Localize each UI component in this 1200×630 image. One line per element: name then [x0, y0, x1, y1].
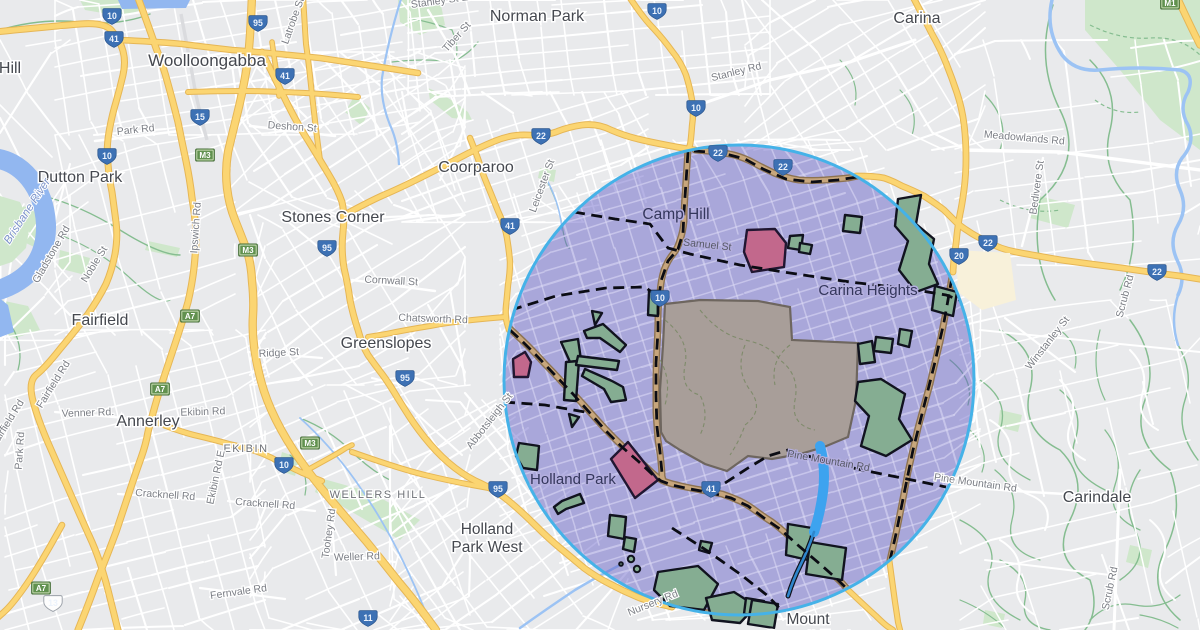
svg-text:WELLERS HILL: WELLERS HILL	[330, 489, 427, 501]
svg-text:10: 10	[655, 293, 665, 303]
svg-text:Ekibin Rd: Ekibin Rd	[180, 405, 225, 419]
svg-text:M3: M3	[199, 151, 211, 160]
svg-text:M3: M3	[242, 246, 254, 255]
svg-text:Holland: Holland	[461, 521, 514, 538]
svg-text:Annerley: Annerley	[116, 413, 179, 430]
svg-text:10: 10	[279, 460, 289, 470]
svg-text:Weller Rd: Weller Rd	[334, 550, 380, 564]
svg-text:A7: A7	[36, 584, 47, 593]
svg-text:15: 15	[195, 112, 205, 122]
svg-text:Woolloongabba: Woolloongabba	[148, 51, 266, 70]
svg-text:13: 13	[48, 598, 58, 608]
svg-text:10: 10	[102, 151, 112, 161]
svg-text:10: 10	[107, 11, 117, 21]
svg-text:Holland Park: Holland Park	[530, 471, 616, 488]
svg-text:Venner Rd.: Venner Rd.	[61, 406, 114, 420]
svg-text:Camp Hill: Camp Hill	[642, 206, 709, 223]
svg-text:22: 22	[536, 131, 546, 141]
svg-text:10: 10	[691, 103, 701, 113]
svg-text:20: 20	[954, 251, 964, 261]
svg-text:95: 95	[400, 373, 410, 383]
svg-text:41: 41	[505, 221, 515, 231]
svg-text:Carina: Carina	[893, 10, 940, 27]
svg-text:Mount: Mount	[786, 611, 830, 628]
svg-text:11: 11	[363, 613, 372, 623]
svg-text:Stones Corner: Stones Corner	[281, 209, 385, 226]
svg-text:EKIBIN: EKIBIN	[223, 443, 268, 455]
svg-text:M1: M1	[1164, 0, 1176, 8]
svg-text:Fairfield: Fairfield	[72, 312, 129, 329]
svg-text:41: 41	[109, 34, 119, 44]
svg-text:22: 22	[983, 238, 993, 248]
svg-text:Coorparoo: Coorparoo	[438, 159, 514, 176]
svg-text:22: 22	[713, 148, 723, 158]
svg-text:95: 95	[493, 484, 503, 494]
svg-text:95: 95	[253, 18, 263, 28]
svg-text:Chatsworth Rd: Chatsworth Rd	[398, 312, 468, 326]
svg-text:Ridge St: Ridge St	[258, 346, 299, 360]
svg-text:95: 95	[322, 243, 332, 253]
svg-text:Carina Heights: Carina Heights	[818, 282, 917, 299]
svg-text:41: 41	[706, 484, 716, 494]
svg-text:22: 22	[778, 162, 788, 172]
svg-text:A7: A7	[185, 312, 196, 321]
svg-text:22: 22	[1152, 267, 1162, 277]
svg-text:10: 10	[652, 6, 662, 16]
svg-text:Carindale: Carindale	[1063, 489, 1132, 506]
svg-text:Park West: Park West	[451, 539, 523, 556]
svg-text:Norman Park: Norman Park	[490, 8, 585, 25]
svg-text:Greenslopes: Greenslopes	[341, 335, 432, 352]
svg-text:M3: M3	[304, 439, 316, 448]
svg-text:41: 41	[280, 71, 290, 81]
svg-text:Hill: Hill	[0, 60, 21, 77]
svg-text:A7: A7	[155, 385, 166, 394]
